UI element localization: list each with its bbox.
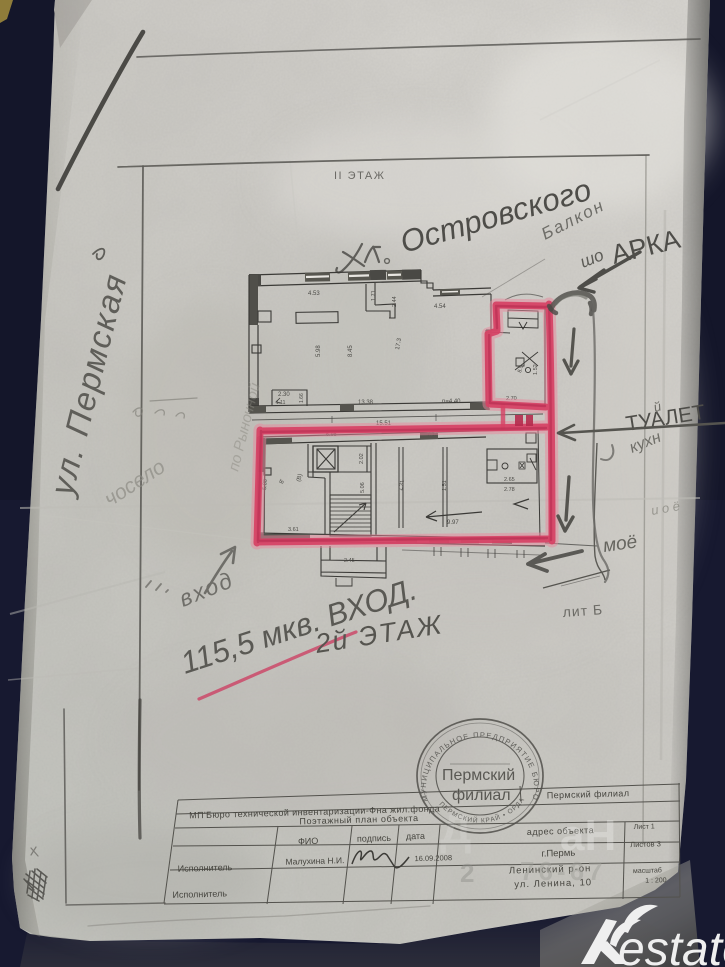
svg-text:лит Б: лит Б <box>562 601 604 620</box>
svg-text:2.78: 2.78 <box>504 487 515 493</box>
svg-text:Исполнитель: Исполнитель <box>178 862 233 874</box>
svg-text:Исполнитель: Исполнитель <box>172 888 227 900</box>
svg-text:ФИО: ФИО <box>298 836 319 847</box>
svg-text:филиал: филиал <box>452 787 511 804</box>
svg-text:3.61: 3.61 <box>288 527 299 533</box>
svg-text:1.52: 1.52 <box>533 364 539 375</box>
svg-text:1.51: 1.51 <box>442 480 448 491</box>
svg-text:n=4.40: n=4.40 <box>442 399 461 405</box>
svg-text:Лист 1: Лист 1 <box>634 823 655 831</box>
svg-text:Малухина Н.И.: Малухина Н.И. <box>285 855 344 867</box>
svg-text:2.65: 2.65 <box>504 477 515 483</box>
svg-text:2.02: 2.02 <box>359 453 365 464</box>
svg-text:5.98: 5.98 <box>316 345 322 357</box>
svg-text:4.53: 4.53 <box>308 291 320 297</box>
svg-text:2.45: 2.45 <box>344 558 355 564</box>
svg-text:estate: estate <box>618 923 725 967</box>
svg-text:аН: аН <box>560 811 616 860</box>
svg-text:II ЭТАЖ: II ЭТАЖ <box>334 170 385 182</box>
svg-text:дата: дата <box>406 831 425 842</box>
svg-text:76-67: 76-67 <box>520 856 607 886</box>
svg-text:Д: Д <box>440 806 471 855</box>
svg-text:1.71: 1.71 <box>371 290 377 301</box>
svg-text:1.66: 1.66 <box>299 393 305 403</box>
svg-text:13.38: 13.38 <box>358 400 374 406</box>
svg-text:подпись: подпись <box>357 833 392 844</box>
svg-text:9.97: 9.97 <box>447 520 459 526</box>
svg-text:1.11: 1.11 <box>276 400 286 406</box>
svg-text:2: 2 <box>460 858 478 888</box>
svg-text:Листов 3: Листов 3 <box>630 839 661 849</box>
svg-text:масштаб: масштаб <box>633 866 662 875</box>
svg-text:5.06: 5.06 <box>360 482 366 493</box>
svg-text:2.30: 2.30 <box>278 392 290 398</box>
svg-text:2.44: 2.44 <box>392 296 398 307</box>
svg-text:4.54: 4.54 <box>434 304 446 310</box>
svg-text:Пермский: Пермский <box>442 767 515 784</box>
svg-text:8.45: 8.45 <box>348 345 354 357</box>
svg-text:1 : 200: 1 : 200 <box>645 877 667 885</box>
